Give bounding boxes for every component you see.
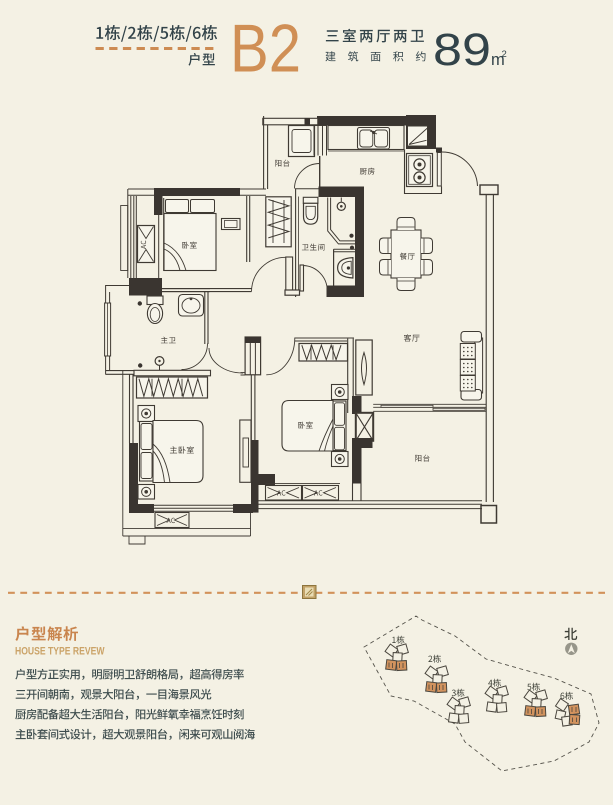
svg-text:89: 89 <box>433 24 491 75</box>
svg-text:HOUSE TYPE REVEW: HOUSE TYPE REVEW <box>15 646 105 658</box>
svg-text:2: 2 <box>502 49 507 60</box>
svg-text:B2: B2 <box>230 11 301 87</box>
